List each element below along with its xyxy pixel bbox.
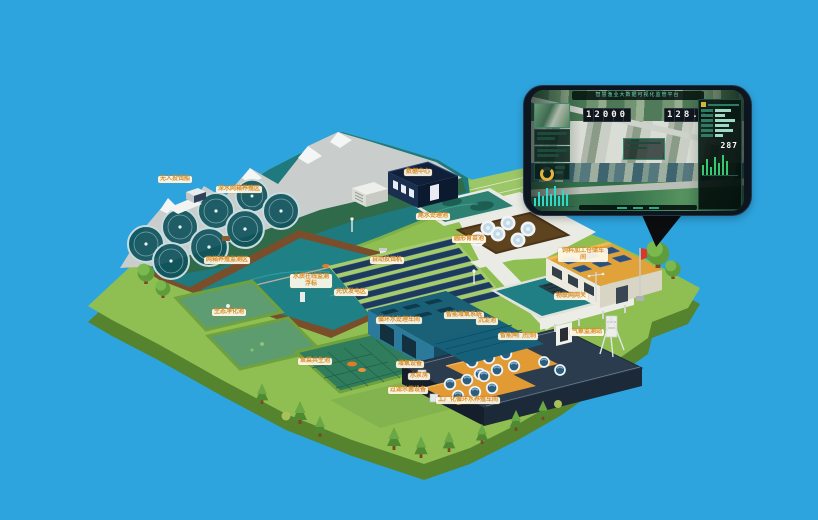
- stat-line: [537, 154, 559, 157]
- legend-square-icon: [701, 102, 706, 107]
- stat-panel: [534, 146, 570, 162]
- map-label: 智能闸门控制: [498, 333, 538, 340]
- map-label: 饲料加工仓储车间: [558, 248, 608, 262]
- flip-counter-left: 12000: [583, 108, 631, 122]
- map-label: 循环水处理车间: [376, 317, 422, 324]
- stat-row: [701, 124, 739, 127]
- stat-row: [701, 134, 739, 137]
- tab-pill: [633, 207, 643, 209]
- stat-line: [555, 166, 565, 169]
- map-label: 尾水处理池: [416, 213, 450, 220]
- right-stat-panel: 287: [698, 99, 742, 210]
- stat-row: [701, 129, 739, 132]
- map-label: 工厂化循环水养殖车间: [436, 397, 500, 404]
- map-label: 气象监测站: [570, 329, 604, 336]
- map-label: 自动投饵机: [370, 257, 404, 264]
- bar-chart-left: [534, 182, 574, 207]
- stat-row: [701, 114, 739, 117]
- map-label: 沉淀池: [476, 318, 498, 325]
- gauge-panel: [534, 163, 570, 180]
- smart-fishery-infographic: 无人投饵船 深水网箱养殖区 网箱养殖监测区 水质在线监测浮标 生态净化池 鱼菜共…: [0, 0, 818, 520]
- phone-mockup: 智慧渔业大数据可视化监管平台 12000 128.5: [523, 85, 752, 216]
- map-label: 过滤杀菌设备: [388, 387, 428, 394]
- map-label: 生态净化池: [212, 309, 246, 316]
- map-label: 光伏发电区: [334, 289, 368, 296]
- dashboard-title: 智慧渔业大数据可视化监管平台: [572, 91, 704, 100]
- map-label: 水泵房: [408, 373, 430, 380]
- stat-panel: [534, 129, 570, 145]
- bar-chart-right: [702, 153, 738, 176]
- map-label: 无人投饵船: [158, 176, 192, 183]
- stat-value: 287: [699, 141, 738, 150]
- tab-pill: [649, 207, 659, 209]
- bottom-tab-bar: [579, 205, 697, 210]
- island-illustration: [0, 0, 818, 520]
- map-label: 水质在线监测浮标: [290, 274, 332, 288]
- stat-line: [537, 149, 567, 152]
- header-line: [708, 104, 739, 106]
- stat-line: [627, 147, 647, 149]
- stat-row: [701, 119, 739, 122]
- stat-line: [537, 132, 567, 135]
- stat-row: [701, 109, 739, 112]
- map-label: 数据中心: [404, 169, 432, 176]
- gauge-donut-icon: [540, 167, 554, 181]
- map-label: 深水网箱养殖区: [216, 186, 262, 193]
- stat-line: [555, 171, 563, 174]
- map-label: 网箱养殖监测区: [204, 257, 250, 264]
- dashboard-screen: 智慧渔业大数据可视化监管平台 12000 128.5: [531, 90, 744, 211]
- map-label: 圆形育苗池: [452, 236, 486, 243]
- map-label: 物联网网关: [554, 293, 588, 300]
- map-label: 鱼菜共生池: [298, 358, 332, 365]
- panel-header: [701, 102, 739, 107]
- stat-line: [627, 142, 661, 144]
- video-thumbnail: [534, 103, 570, 128]
- map-label: 增氧设备: [396, 361, 424, 368]
- stat-line: [537, 137, 555, 140]
- tab-pill: [617, 207, 627, 209]
- map-overlay-panel: [623, 138, 665, 160]
